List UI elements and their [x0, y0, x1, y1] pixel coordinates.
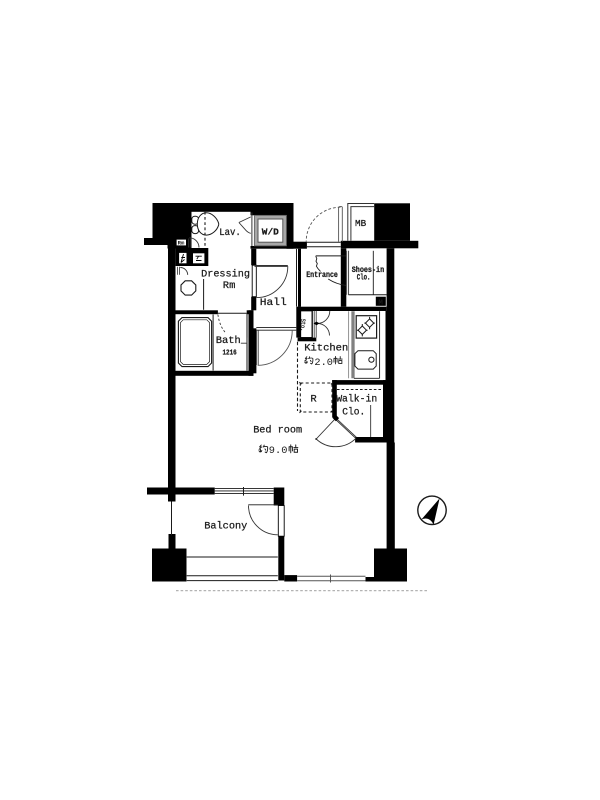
svg-text:W/D: W/D [262, 228, 280, 238]
svg-text:Lav.: Lav. [219, 228, 241, 239]
svg-text:Clo.: Clo. [357, 275, 371, 283]
svg-text:Bath: Bath [216, 335, 241, 347]
svg-text:Walk-in: Walk-in [336, 394, 377, 406]
svg-text:2.0: 2.0 [314, 358, 333, 369]
svg-text:Entrance: Entrance [306, 272, 338, 280]
svg-text:Dressing: Dressing [201, 269, 250, 281]
svg-text:Clo.: Clo. [342, 407, 365, 419]
svg-text:Bed room: Bed room [253, 425, 302, 437]
svg-text:Rm: Rm [223, 280, 236, 292]
svg-text:Kitchen: Kitchen [304, 342, 348, 354]
svg-text:MB: MB [355, 219, 367, 229]
svg-text:Sto.: Sto. [299, 319, 306, 331]
svg-text:M: M [378, 299, 383, 307]
svg-text:R: R [310, 394, 317, 406]
svg-text:Hall: Hall [260, 297, 287, 309]
svg-text:Rm: Rm [178, 240, 185, 247]
svg-text:Balcony: Balcony [204, 521, 247, 533]
svg-text:9.0: 9.0 [269, 446, 288, 457]
svg-text:1216: 1216 [223, 350, 237, 358]
